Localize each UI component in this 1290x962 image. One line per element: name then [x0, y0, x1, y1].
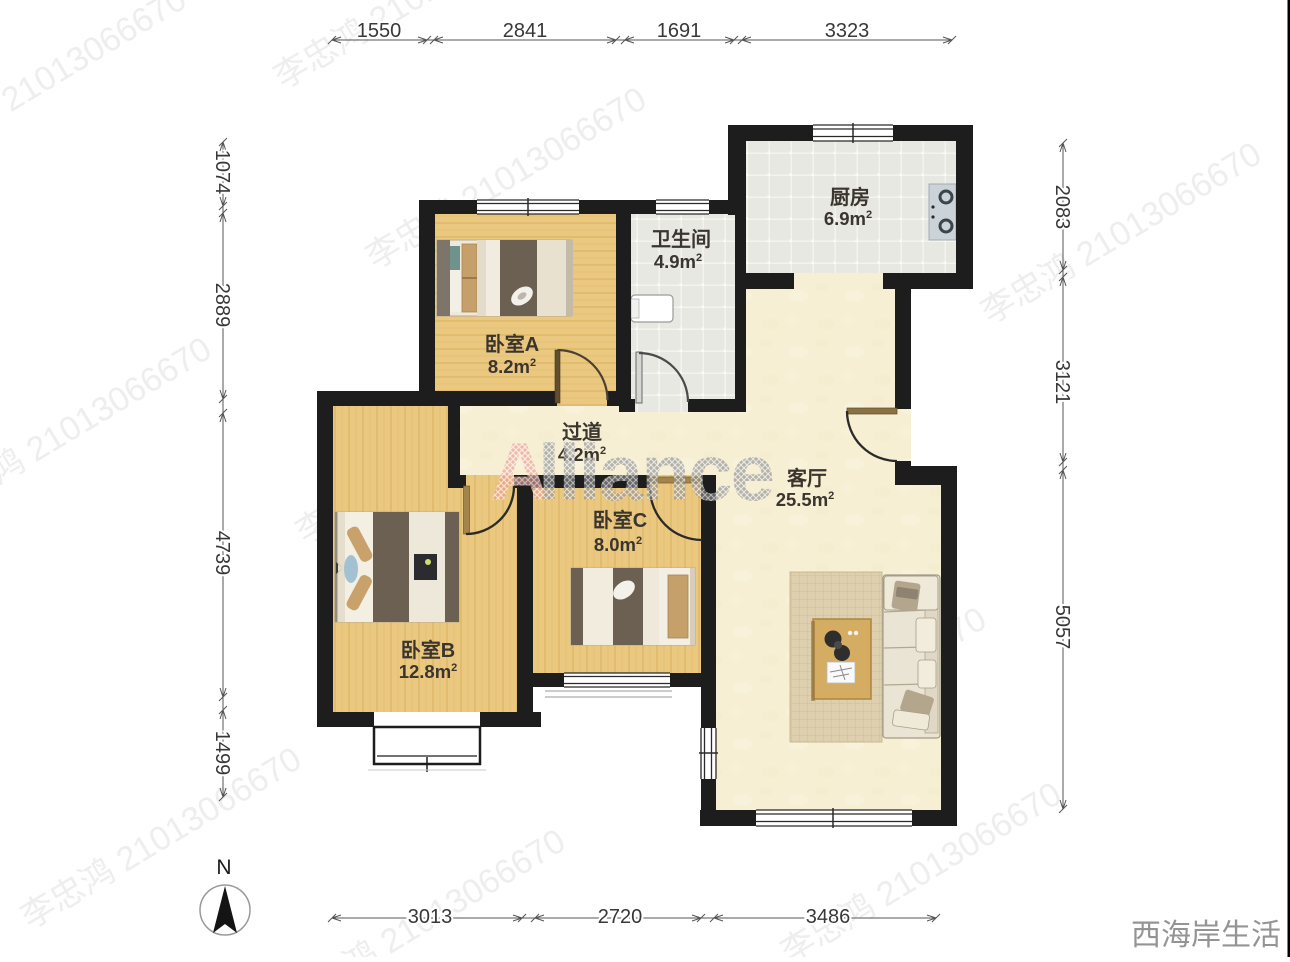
svg-text:N: N: [216, 856, 231, 879]
svg-text:2720: 2720: [598, 906, 643, 928]
svg-text:6.9m2: 6.9m2: [824, 208, 872, 229]
svg-text:1074: 1074: [211, 150, 233, 195]
svg-text:1550: 1550: [357, 20, 402, 42]
svg-text:lliance: lliance: [538, 428, 773, 517]
svg-text:3323: 3323: [825, 20, 870, 42]
svg-text:8.0m2: 8.0m2: [594, 534, 642, 555]
svg-text:8.2m2: 8.2m2: [488, 356, 536, 377]
svg-text:卧室B: 卧室B: [401, 638, 455, 662]
svg-text:12.8m2: 12.8m2: [399, 661, 458, 682]
svg-text:1499: 1499: [211, 731, 233, 776]
svg-text:客厅: 客厅: [786, 466, 827, 490]
svg-text:卫生间: 卫生间: [651, 228, 711, 251]
svg-text:25.5m2: 25.5m2: [776, 489, 835, 510]
svg-text:西海岸生活: 西海岸生活: [1131, 919, 1281, 952]
svg-text:2083: 2083: [1051, 185, 1073, 230]
svg-text:2841: 2841: [503, 20, 548, 42]
svg-text:5057: 5057: [1051, 605, 1073, 650]
svg-text:厨房: 厨房: [830, 185, 870, 209]
svg-text:3486: 3486: [806, 906, 851, 928]
svg-text:4.9m2: 4.9m2: [654, 251, 702, 272]
svg-text:3013: 3013: [408, 906, 453, 928]
svg-text:1691: 1691: [657, 20, 702, 42]
svg-text:2889: 2889: [211, 283, 233, 328]
svg-text:卧室A: 卧室A: [485, 332, 539, 356]
svg-text:3121: 3121: [1051, 360, 1073, 405]
svg-text:4739: 4739: [211, 531, 233, 576]
